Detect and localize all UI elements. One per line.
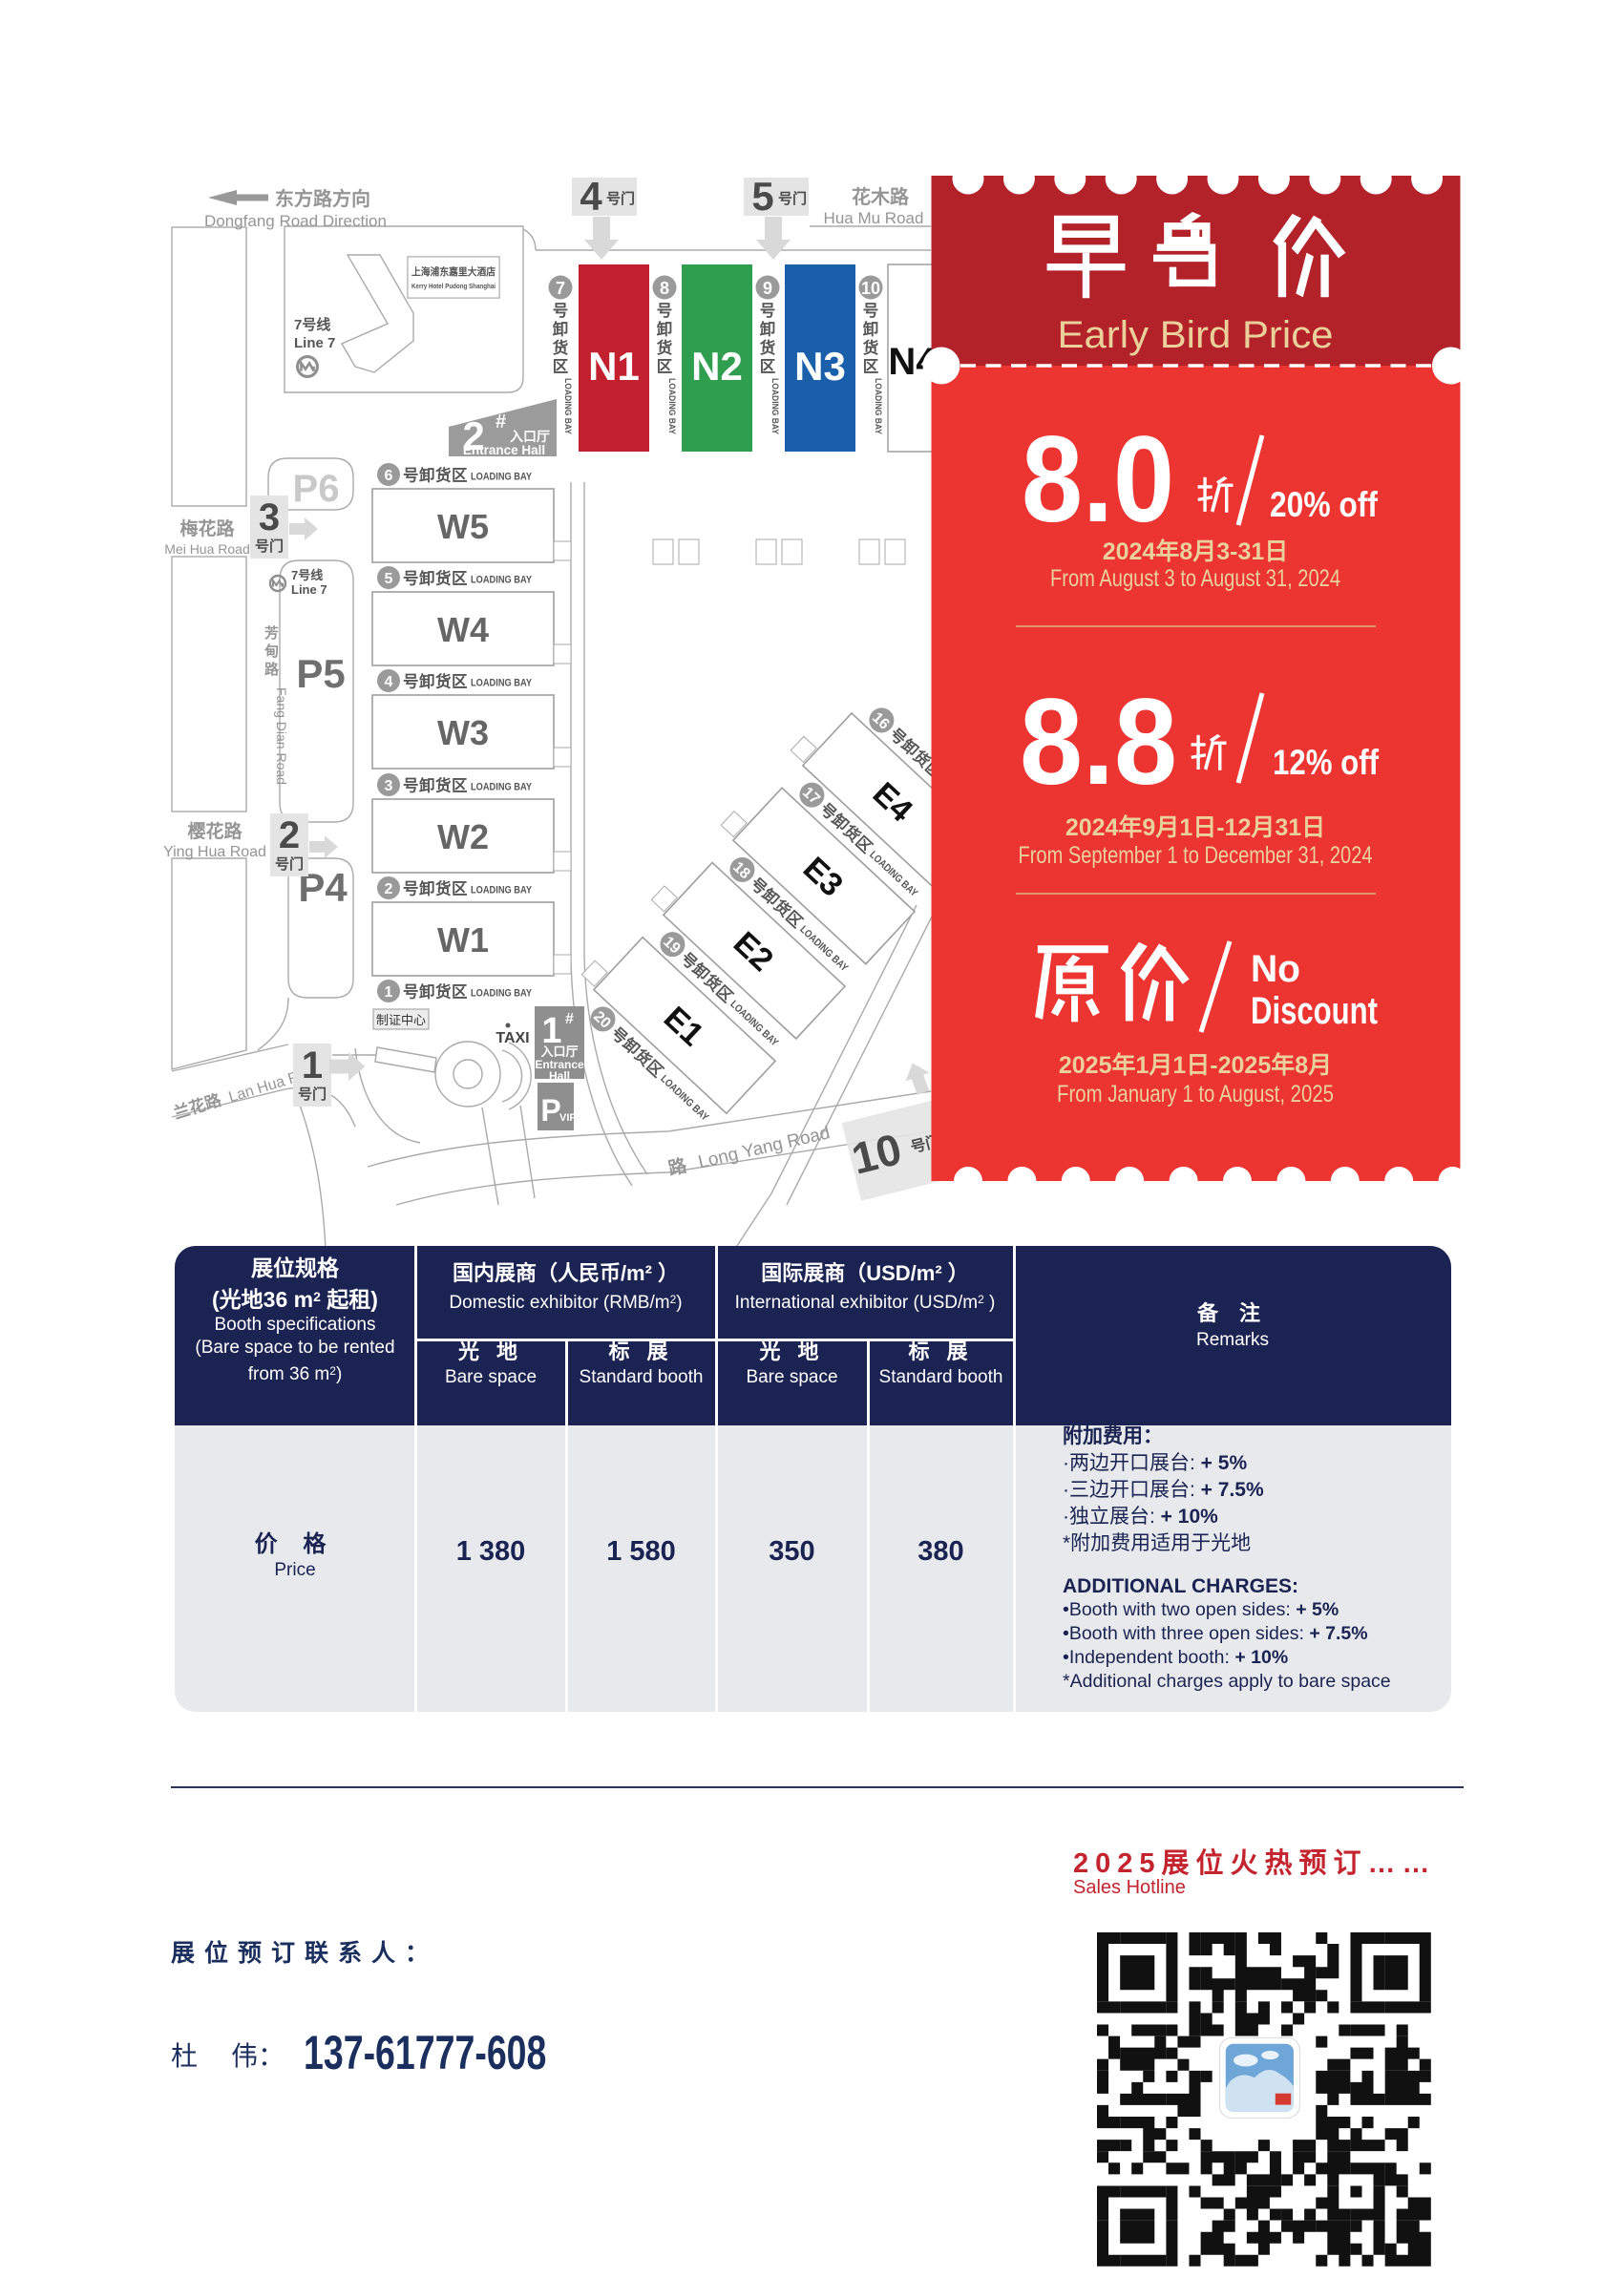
svg-text:花木路: 花木路 bbox=[852, 185, 910, 208]
svg-text:From August 3 to August 31, 20: From August 3 to August 31, 2024 bbox=[1050, 565, 1340, 592]
svg-text:货: 货 bbox=[760, 338, 776, 357]
svg-text:Fang Dian Road: Fang Dian Road bbox=[274, 687, 289, 785]
svg-text:1: 1 bbox=[302, 1044, 323, 1086]
svg-text:号: 号 bbox=[863, 302, 879, 320]
svg-text:甸: 甸 bbox=[264, 643, 279, 660]
svg-text:区: 区 bbox=[553, 358, 569, 376]
svg-text:VIP: VIP bbox=[559, 1112, 577, 1124]
svg-text:8: 8 bbox=[660, 279, 669, 298]
svg-text:P5: P5 bbox=[296, 651, 345, 696]
svg-text:LOADING BAY: LOADING BAY bbox=[873, 378, 883, 435]
svg-text:LOADING BAY: LOADING BAY bbox=[666, 378, 677, 435]
svg-text:W2: W2 bbox=[437, 817, 489, 856]
svg-text:6: 6 bbox=[385, 468, 393, 484]
svg-text:樱花路: 樱花路 bbox=[187, 820, 243, 842]
svg-text:号门: 号门 bbox=[778, 190, 807, 207]
svg-text:Entrance Hall: Entrance Hall bbox=[463, 443, 545, 457]
svg-text:区: 区 bbox=[657, 358, 673, 376]
svg-text:号: 号 bbox=[657, 302, 673, 320]
svg-text:3: 3 bbox=[385, 778, 393, 794]
svg-text:W3: W3 bbox=[437, 713, 489, 752]
svg-text:1: 1 bbox=[385, 984, 393, 1001]
svg-text:号门: 号门 bbox=[298, 1086, 327, 1103]
svg-text:2025年1月1日-2025年8月: 2025年1月1日-2025年8月 bbox=[1059, 1051, 1332, 1079]
svg-text:Mei Hua Road: Mei Hua Road bbox=[164, 541, 250, 557]
svg-text:4: 4 bbox=[580, 174, 602, 219]
svg-text:8.0: 8.0 bbox=[1022, 411, 1174, 548]
svg-text:Early Bird Price: Early Bird Price bbox=[1058, 314, 1334, 356]
svg-text:LOADING BAY: LOADING BAY bbox=[770, 378, 780, 435]
svg-text:Line 7: Line 7 bbox=[291, 582, 327, 597]
svg-text:Discount: Discount bbox=[1251, 990, 1378, 1032]
svg-text:号卸货区: 号卸货区 bbox=[403, 466, 468, 485]
svg-text:12% off: 12% off bbox=[1273, 743, 1380, 782]
svg-text:LOADING BAY: LOADING BAY bbox=[471, 988, 533, 1000]
svg-text:N3: N3 bbox=[794, 344, 846, 389]
svg-text:LOADING BAY: LOADING BAY bbox=[471, 472, 533, 483]
svg-text:入口厅: 入口厅 bbox=[510, 429, 550, 444]
svg-text:LOADING BAY: LOADING BAY bbox=[471, 678, 533, 689]
svg-text:2024年8月3-31日: 2024年8月3-31日 bbox=[1103, 538, 1289, 565]
svg-text:路: 路 bbox=[666, 1154, 690, 1180]
svg-text:LOADING BAY: LOADING BAY bbox=[471, 885, 533, 896]
svg-text:20% off: 20% off bbox=[1270, 485, 1379, 524]
svg-text:卸: 卸 bbox=[553, 320, 569, 339]
svg-text:上海浦东嘉里大酒店: 上海浦东嘉里大酒店 bbox=[411, 265, 496, 278]
svg-text:区: 区 bbox=[760, 358, 776, 376]
svg-text:W4: W4 bbox=[437, 610, 489, 649]
svg-text:区: 区 bbox=[863, 358, 879, 376]
svg-text:Ying Hua Road: Ying Hua Road bbox=[163, 844, 266, 860]
svg-text:2: 2 bbox=[279, 814, 300, 856]
svg-text:货: 货 bbox=[863, 338, 879, 357]
svg-text:From January 1 to August, 2025: From January 1 to August, 2025 bbox=[1057, 1081, 1334, 1107]
svg-text:Hall: Hall bbox=[549, 1069, 570, 1083]
svg-text:P: P bbox=[540, 1093, 560, 1128]
svg-text:#: # bbox=[565, 1011, 574, 1027]
svg-text:TAXI: TAXI bbox=[496, 1030, 529, 1046]
svg-text:5: 5 bbox=[385, 571, 393, 587]
svg-text:货: 货 bbox=[553, 338, 569, 357]
svg-text:卸: 卸 bbox=[863, 320, 879, 339]
svg-text:号卸货区: 号卸货区 bbox=[403, 879, 468, 898]
svg-text:卸: 卸 bbox=[657, 320, 673, 339]
svg-text:9: 9 bbox=[763, 279, 772, 298]
svg-text:入口厅: 入口厅 bbox=[540, 1044, 578, 1059]
svg-text:N2: N2 bbox=[691, 344, 743, 389]
svg-text:8.8: 8.8 bbox=[1020, 674, 1177, 811]
svg-text:W5: W5 bbox=[437, 507, 489, 546]
svg-text:P6: P6 bbox=[293, 468, 340, 510]
svg-text:5: 5 bbox=[751, 174, 773, 219]
svg-text:号卸货区: 号卸货区 bbox=[403, 569, 468, 588]
svg-text:From September 1 to December 3: From September 1 to December 31, 2024 bbox=[1019, 842, 1373, 869]
svg-text:货: 货 bbox=[657, 338, 673, 357]
svg-text:7: 7 bbox=[556, 279, 565, 298]
svg-text:号卸货区: 号卸货区 bbox=[403, 672, 468, 691]
svg-text:卸: 卸 bbox=[760, 320, 776, 339]
svg-text:#: # bbox=[496, 411, 506, 432]
svg-text:LOADING BAY: LOADING BAY bbox=[562, 378, 573, 435]
svg-text:2: 2 bbox=[385, 881, 393, 897]
svg-text:3: 3 bbox=[259, 496, 280, 538]
svg-text:No: No bbox=[1251, 948, 1300, 990]
svg-text:梅花路: 梅花路 bbox=[179, 517, 235, 539]
svg-text:W1: W1 bbox=[437, 920, 489, 960]
svg-text:路: 路 bbox=[264, 661, 280, 678]
svg-text:兰花路: 兰花路 bbox=[171, 1089, 224, 1122]
svg-text:LOADING BAY: LOADING BAY bbox=[471, 782, 533, 793]
svg-text:Hua Mu Road: Hua Mu Road bbox=[824, 209, 924, 227]
svg-text:Line 7: Line 7 bbox=[294, 335, 335, 351]
svg-text:Long Yang Road: Long Yang Road bbox=[696, 1123, 832, 1172]
svg-text:号: 号 bbox=[553, 302, 569, 320]
svg-text:制证中心: 制证中心 bbox=[376, 1013, 426, 1027]
svg-text:2024年9月1日-12月31日: 2024年9月1日-12月31日 bbox=[1065, 813, 1325, 841]
svg-text:号门: 号门 bbox=[606, 190, 635, 207]
svg-text:芳: 芳 bbox=[264, 624, 279, 642]
svg-text:号卸货区: 号卸货区 bbox=[403, 982, 468, 1002]
svg-text:7号线: 7号线 bbox=[294, 316, 330, 333]
svg-text:N1: N1 bbox=[588, 344, 640, 389]
svg-text:4: 4 bbox=[385, 674, 393, 690]
svg-text:号门: 号门 bbox=[275, 855, 304, 873]
svg-text:东方路方向: 东方路方向 bbox=[275, 187, 370, 210]
svg-text:Dongfang Road Direction: Dongfang Road Direction bbox=[204, 212, 387, 230]
svg-text:号卸货区: 号卸货区 bbox=[403, 776, 468, 795]
svg-text:7号线: 7号线 bbox=[291, 568, 323, 582]
svg-text:LOADING BAY: LOADING BAY bbox=[471, 575, 533, 586]
svg-text:号门: 号门 bbox=[255, 538, 284, 555]
svg-text:10: 10 bbox=[861, 279, 880, 298]
svg-text:Kerry Hotel Pudong Shanghai: Kerry Hotel Pudong Shanghai bbox=[411, 282, 496, 290]
svg-text:号: 号 bbox=[760, 302, 776, 320]
